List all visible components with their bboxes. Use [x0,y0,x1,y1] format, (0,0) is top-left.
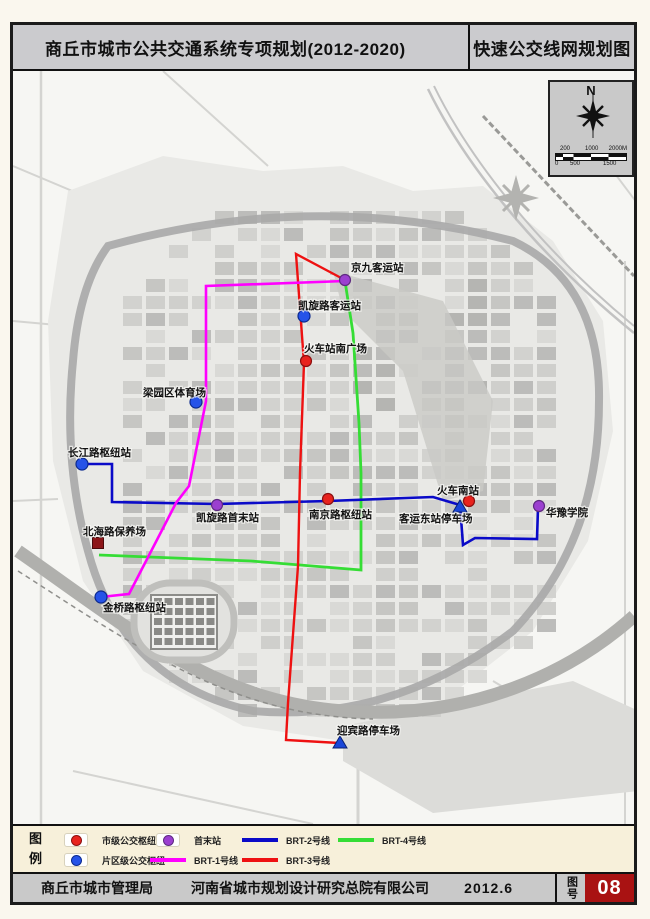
sheet-number-label-cell: 图号 [555,874,585,902]
legend-item-label: BRT-2号线 [286,834,330,847]
header-subtitle-cell: 快速公交线网规划图 [470,25,634,69]
scale-bar-graphic [555,153,627,161]
legend-item: BRT-4号线 [338,830,426,850]
sheet-date: 2012.6 [464,874,513,902]
station-label-changjiang-road-hub: 长江路枢纽站 [68,446,131,459]
station-label-yingbin-road-parking: 迎宾路停车场 [337,724,400,737]
legend-station-marker-icon [58,853,94,867]
design-company: 河南省城市规划设计研究总院有限公司 [191,874,429,902]
station-label-east-coach-station-parking: 客运东站停车场 [398,512,473,525]
legend-row-2: 片区级公交枢纽BRT-1号线BRT-3号线 [13,850,634,870]
plan-sheet-page: 商丘市城市公共交通系统专项规划(2012-2020) 快速公交线网规划图 京九客… [0,0,650,919]
station-marker-nanjing-road-hub [323,494,334,505]
scale-bottom-labels: 0 500 1500 [555,161,627,168]
station-label-kaixuan-road-coach-station: 凯旋路客运站 [298,299,361,312]
legend-item: 市级公交枢纽 [58,830,156,850]
sheet-header: 商丘市城市公共交通系统专项规划(2012-2020) 快速公交线网规划图 [13,25,634,71]
station-label-liangyuan-district-stadium: 梁园区体育场 [142,386,206,399]
station-marker-jingjiu-coach-station [340,275,351,286]
legend-item: BRT-3号线 [242,850,330,870]
legend-item: 片区级公交枢纽 [58,850,165,870]
compass-rose-icon [568,94,618,140]
legend-line-sample-icon [150,858,186,862]
sheet-number-badge: 08 [585,874,634,902]
legend-item-label: BRT-4号线 [382,834,426,847]
station-label-south-railway-station: 火车南站 [437,484,479,497]
scale-bar: 200 1000 2000M 0 500 1500 [555,146,627,170]
station-label-nanjing-road-hub: 南京路枢纽站 [309,508,372,521]
station-label-beihai-road-depot: 北海路保养场 [83,525,146,538]
legend-item-label: 市级公交枢纽 [102,834,156,847]
north-scale-panel: N 200 1000 2000M 0 [548,80,634,177]
legend-item-label: 首末站 [194,834,221,847]
managing-agency: 商丘市城市管理局 [41,874,153,902]
scale-top-labels: 200 1000 2000M [555,146,627,153]
station-label-kaixuan-road-terminus: 凯旋路首末站 [196,511,259,524]
legend-row-1: 市级公交枢纽首末站BRT-2号线BRT-4号线 [13,830,634,850]
sheet-frame: 商丘市城市公共交通系统专项规划(2012-2020) 快速公交线网规划图 京九客… [10,22,637,905]
station-marker-changjiang-road-hub [76,458,88,470]
legend-station-marker-icon [58,833,94,847]
station-label-huayu-college: 华豫学院 [546,506,588,519]
legend-item: BRT-2号线 [242,830,330,850]
legend-line-sample-icon [338,838,374,842]
station-label-jinqiao-road-hub: 金桥路枢纽站 [102,601,166,614]
station-marker-beihai-road-depot [93,538,104,549]
legend-item-label: BRT-3号线 [286,854,330,867]
plan-title: 商丘市城市公共交通系统专项规划(2012-2020) [45,35,406,60]
legend: 图例 市级公交枢纽首末站BRT-2号线BRT-4号线 片区级公交枢纽BRT-1号… [13,824,634,872]
station-marker-kaixuan-road-terminus [212,500,223,511]
station-marker-south-railway-station [464,496,475,507]
legend-item: 首末站 [150,830,221,850]
legend-item-label: BRT-1号线 [194,854,238,867]
station-marker-huayu-college [534,501,545,512]
legend-line-sample-icon [242,858,278,862]
station-label-jingjiu-coach-station: 京九客运站 [351,261,404,274]
sheet-title: 快速公交线网规划图 [473,35,631,60]
legend-station-marker-icon [150,833,186,847]
title-block-footer: 商丘市城市管理局 河南省城市规划设计研究总院有限公司 2012.6 图号 08 [13,872,634,902]
legend-item: BRT-1号线 [150,850,238,870]
station-label-railway-station-south-square: 火车站南广场 [304,342,367,355]
header-title-cell: 商丘市城市公共交通系统专项规划(2012-2020) [13,25,470,69]
city-map: 京九客运站凯旋路客运站火车站南广场梁园区体育场长江路枢纽站凯旋路首末站南京路枢纽… [13,71,634,824]
station-marker-railway-station-south-square [301,356,312,367]
map-area: 京九客运站凯旋路客运站火车站南广场梁园区体育场长江路枢纽站凯旋路首末站南京路枢纽… [13,71,634,824]
legend-line-sample-icon [242,838,278,842]
